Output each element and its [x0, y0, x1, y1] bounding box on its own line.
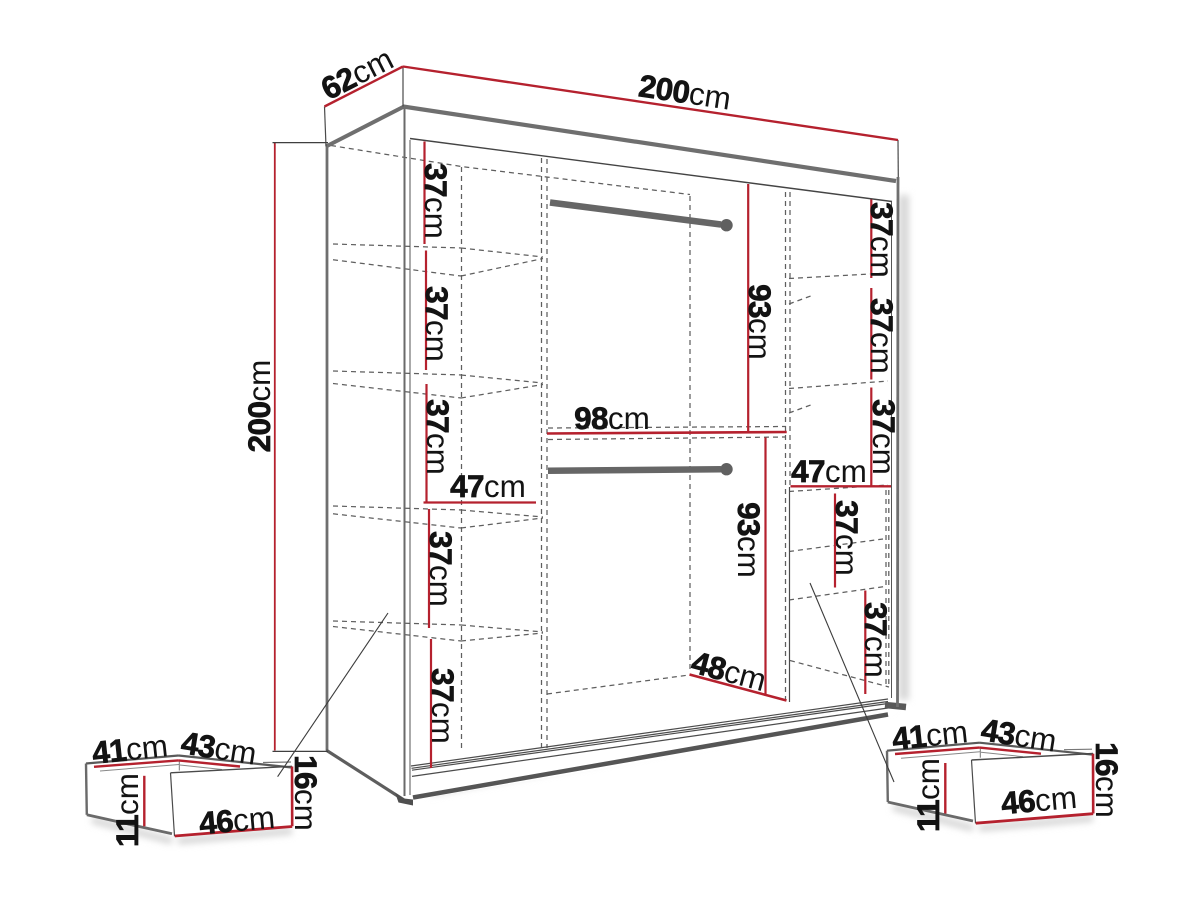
svg-text:16cm: 16cm	[288, 755, 324, 831]
svg-text:47cm: 47cm	[450, 468, 526, 504]
svg-text:37cm: 37cm	[423, 531, 459, 607]
svg-text:37cm: 37cm	[420, 399, 456, 475]
svg-text:37cm: 37cm	[858, 602, 894, 678]
svg-text:93cm: 93cm	[731, 502, 767, 578]
svg-text:37cm: 37cm	[418, 163, 454, 239]
svg-text:93cm: 93cm	[742, 284, 778, 360]
svg-text:37cm: 37cm	[419, 286, 455, 362]
svg-text:47cm: 47cm	[791, 453, 867, 489]
svg-text:37cm: 37cm	[864, 202, 900, 278]
svg-text:37cm: 37cm	[425, 668, 461, 744]
svg-text:11cm: 11cm	[910, 758, 946, 832]
svg-text:46cm: 46cm	[198, 799, 277, 841]
svg-text:37cm: 37cm	[864, 298, 900, 374]
svg-text:11cm: 11cm	[109, 773, 145, 847]
svg-text:37cm: 37cm	[866, 399, 902, 475]
svg-text:46cm: 46cm	[1000, 779, 1079, 821]
svg-text:98cm: 98cm	[574, 400, 650, 436]
svg-text:200cm: 200cm	[241, 360, 277, 453]
svg-text:37cm: 37cm	[829, 500, 865, 576]
svg-text:16cm: 16cm	[1089, 742, 1125, 818]
